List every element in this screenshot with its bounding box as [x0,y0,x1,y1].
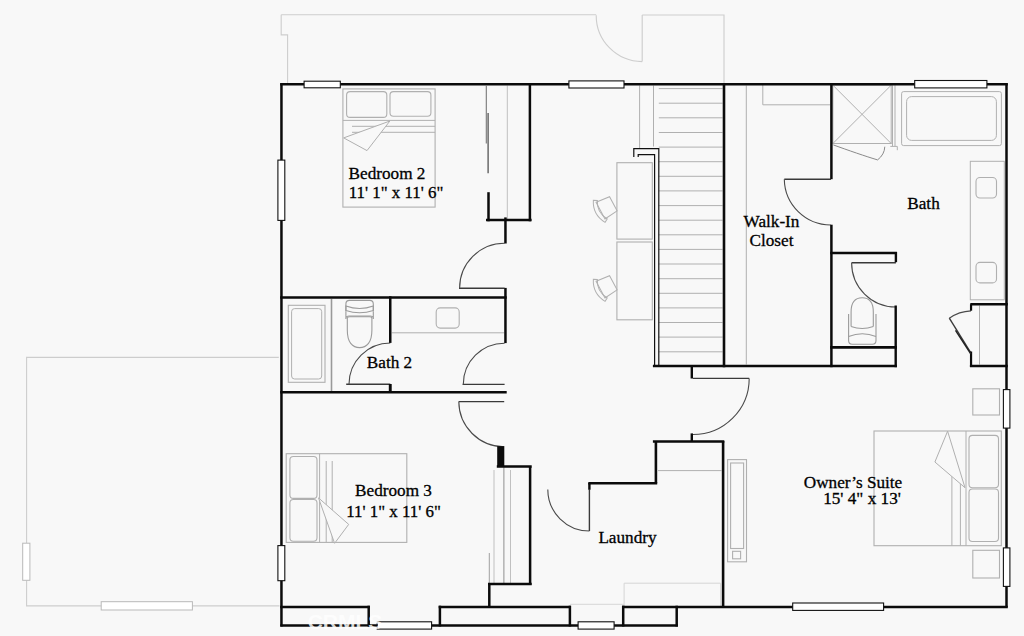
svg-text:Bedroom 2: Bedroom 2 [349,164,426,183]
svg-text:11' 1" x 11' 6": 11' 1" x 11' 6" [346,502,441,521]
svg-text:Bath 2: Bath 2 [367,353,412,372]
svg-text:Walk-In: Walk-In [744,212,800,231]
svg-text:Bath: Bath [907,194,940,213]
svg-text:CRMLS: CRMLS [308,610,383,633]
svg-text:Closet: Closet [750,231,794,250]
svg-text:Bedroom 3: Bedroom 3 [355,481,432,500]
svg-text:11' 1" x 11' 6": 11' 1" x 11' 6" [349,183,444,202]
svg-text:Laundry: Laundry [598,528,657,547]
svg-text:15' 4" x 13': 15' 4" x 13' [823,489,901,508]
